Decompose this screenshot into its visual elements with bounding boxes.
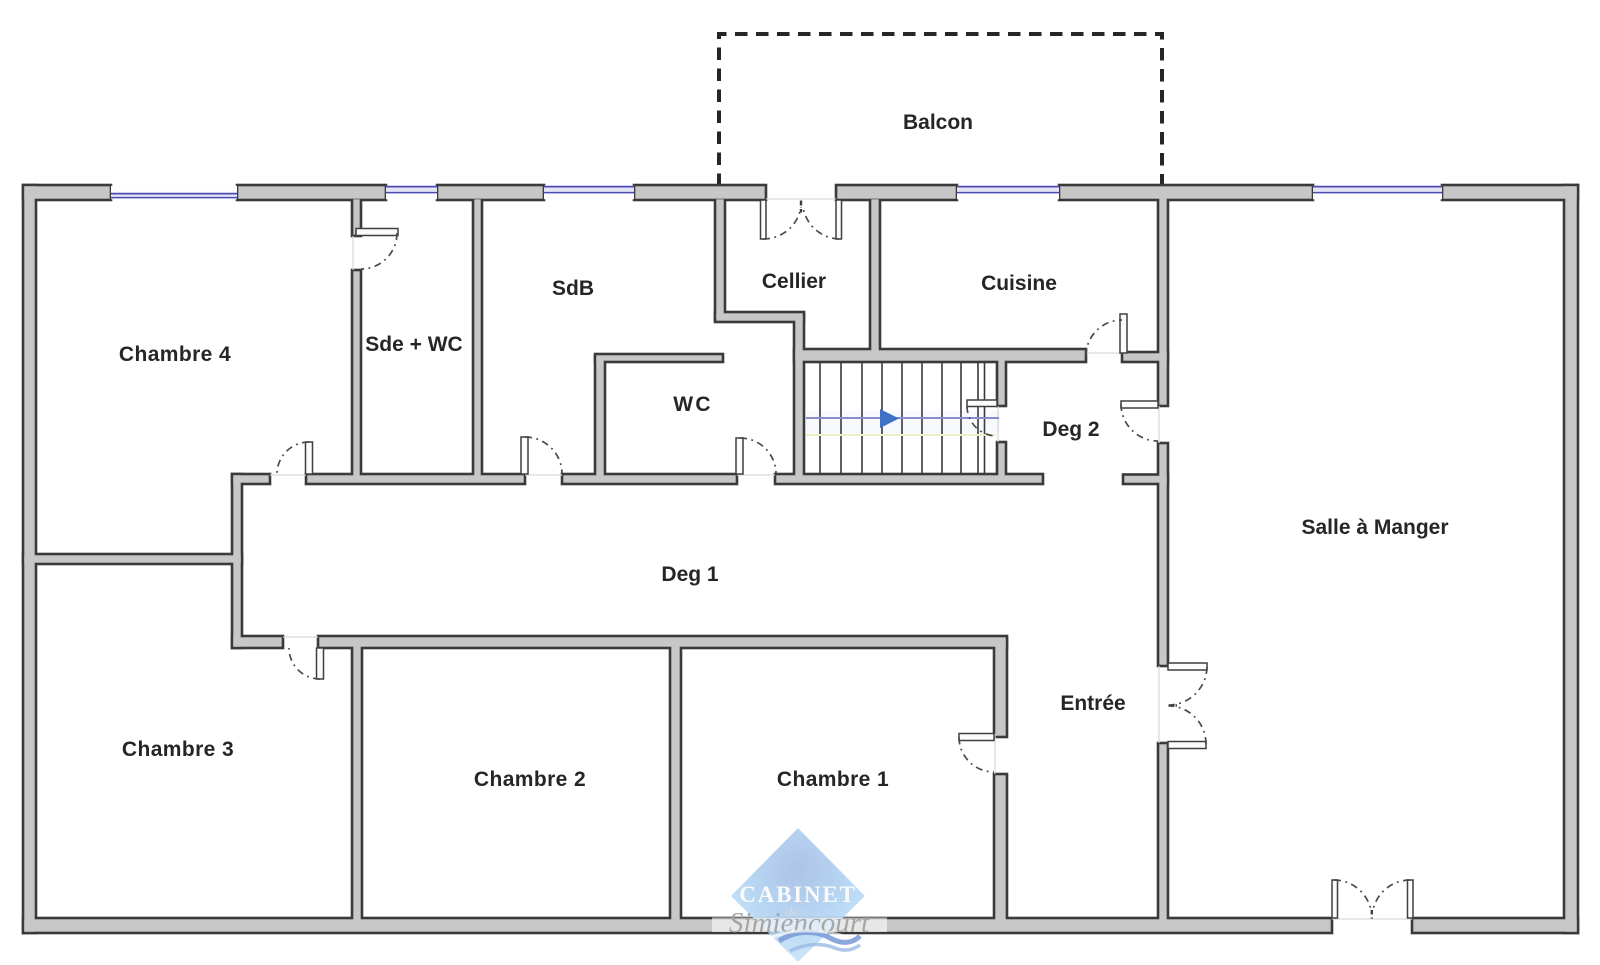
svg-text:Salle à Manger: Salle à Manger [1301, 516, 1448, 539]
svg-text:CABINET: CABINET [739, 882, 856, 907]
svg-text:Chambre 1: Chambre 1 [777, 768, 889, 791]
svg-text:Entrée: Entrée [1060, 692, 1125, 715]
svg-text:WC: WC [673, 393, 712, 416]
svg-text:SdB: SdB [552, 277, 594, 300]
svg-text:Chambre 3: Chambre 3 [122, 738, 234, 761]
svg-text:Chambre 2: Chambre 2 [474, 768, 586, 791]
svg-text:Cuisine: Cuisine [981, 272, 1057, 295]
svg-text:Deg 2: Deg 2 [1042, 418, 1099, 441]
svg-text:Balcon: Balcon [903, 111, 973, 134]
svg-text:Chambre 4: Chambre 4 [119, 343, 231, 366]
svg-text:Sde + WC: Sde + WC [365, 333, 462, 356]
svg-text:Cellier: Cellier [762, 270, 826, 293]
svg-text:Deg 1: Deg 1 [661, 563, 719, 586]
